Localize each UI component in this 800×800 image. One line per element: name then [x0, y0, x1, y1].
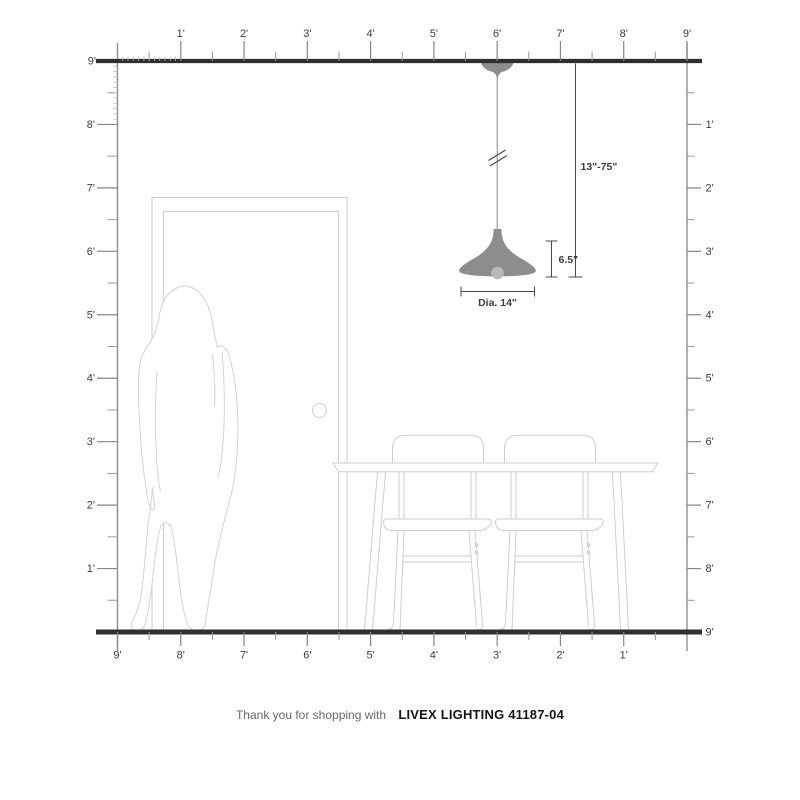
top-ruler-label: 8'	[620, 28, 628, 40]
left-ruler-label: 7'	[87, 182, 95, 194]
diameter-label: Dia. 14"	[478, 297, 517, 309]
left-ruler-label: 1'	[87, 563, 95, 575]
left-ruler-label: 4'	[87, 373, 95, 385]
bottom-ruler-label: 1'	[620, 650, 628, 662]
top-ruler-label: 4'	[367, 28, 375, 40]
person-silhouette	[131, 286, 238, 631]
caption: Thank you for shopping with LIVEX LIGHTI…	[0, 706, 800, 724]
table-leg-right	[613, 472, 629, 630]
door-knob	[313, 404, 327, 418]
diameter-dim-line	[461, 287, 535, 297]
right-ruler-label: 1'	[706, 119, 714, 131]
top-ruler-label: 1'	[177, 28, 185, 40]
ceiling-canopy	[481, 61, 514, 79]
scale-diagram: 1'2'3'4'5'6'7'8'9'9'8'7'6'5'4'3'2'1'1'2'…	[0, 0, 800, 800]
bottom-ruler-label: 3'	[493, 650, 501, 662]
table-top	[333, 463, 658, 472]
bottom-ruler-label: 2'	[556, 650, 564, 662]
top-ruler-label: 2'	[240, 28, 248, 40]
right-ruler-label: 8'	[706, 563, 714, 575]
shade-height-label: 6.5"	[559, 254, 579, 266]
bottom-ruler-label: 6'	[303, 650, 311, 662]
left-ruler-label: 8'	[87, 119, 95, 131]
bulb-diffuser	[491, 267, 504, 280]
bottom-ruler-label: 7'	[240, 650, 248, 662]
bottom-ruler-label: 4'	[430, 650, 438, 662]
right-ruler-label: 9'	[706, 627, 714, 639]
right-ruler-label: 6'	[706, 436, 714, 448]
top-ruler-label: 3'	[303, 28, 311, 40]
top-ruler-label: 9'	[683, 28, 691, 40]
left-ruler-label: 9'	[88, 56, 96, 68]
caption-product: LIVEX LIGHTING 41187-04	[398, 707, 564, 722]
right-ruler-label: 5'	[706, 373, 714, 385]
caption-space	[391, 708, 394, 722]
caption-prefix: Thank you for shopping with	[236, 708, 386, 722]
right-ruler-label: 3'	[706, 246, 714, 258]
right-ruler-label: 2'	[706, 182, 714, 194]
left-ruler-label: 5'	[87, 309, 95, 321]
dining-table	[333, 463, 658, 630]
bottom-ruler-label: 5'	[367, 650, 375, 662]
pendant-light	[459, 61, 536, 279]
table-leg-left	[365, 472, 386, 630]
right-ruler-label: 4'	[706, 309, 714, 321]
top-ruler-label: 6'	[493, 28, 501, 40]
left-ruler-label: 2'	[87, 500, 95, 512]
top-ruler-label: 7'	[556, 28, 564, 40]
bottom-ruler-label: 9'	[113, 650, 121, 662]
bottom-ruler-label: 8'	[177, 650, 185, 662]
scale-diagram-page: 1'2'3'4'5'6'7'8'9'9'8'7'6'5'4'3'2'1'1'2'…	[0, 0, 800, 800]
left-ruler-label: 6'	[87, 246, 95, 258]
left-ruler-label: 3'	[87, 436, 95, 448]
shade-height-dim-line	[546, 241, 558, 277]
right-ruler-label: 7'	[706, 500, 714, 512]
top-ruler-label: 5'	[430, 28, 438, 40]
drop-range-label: 13"-75"	[581, 161, 618, 173]
